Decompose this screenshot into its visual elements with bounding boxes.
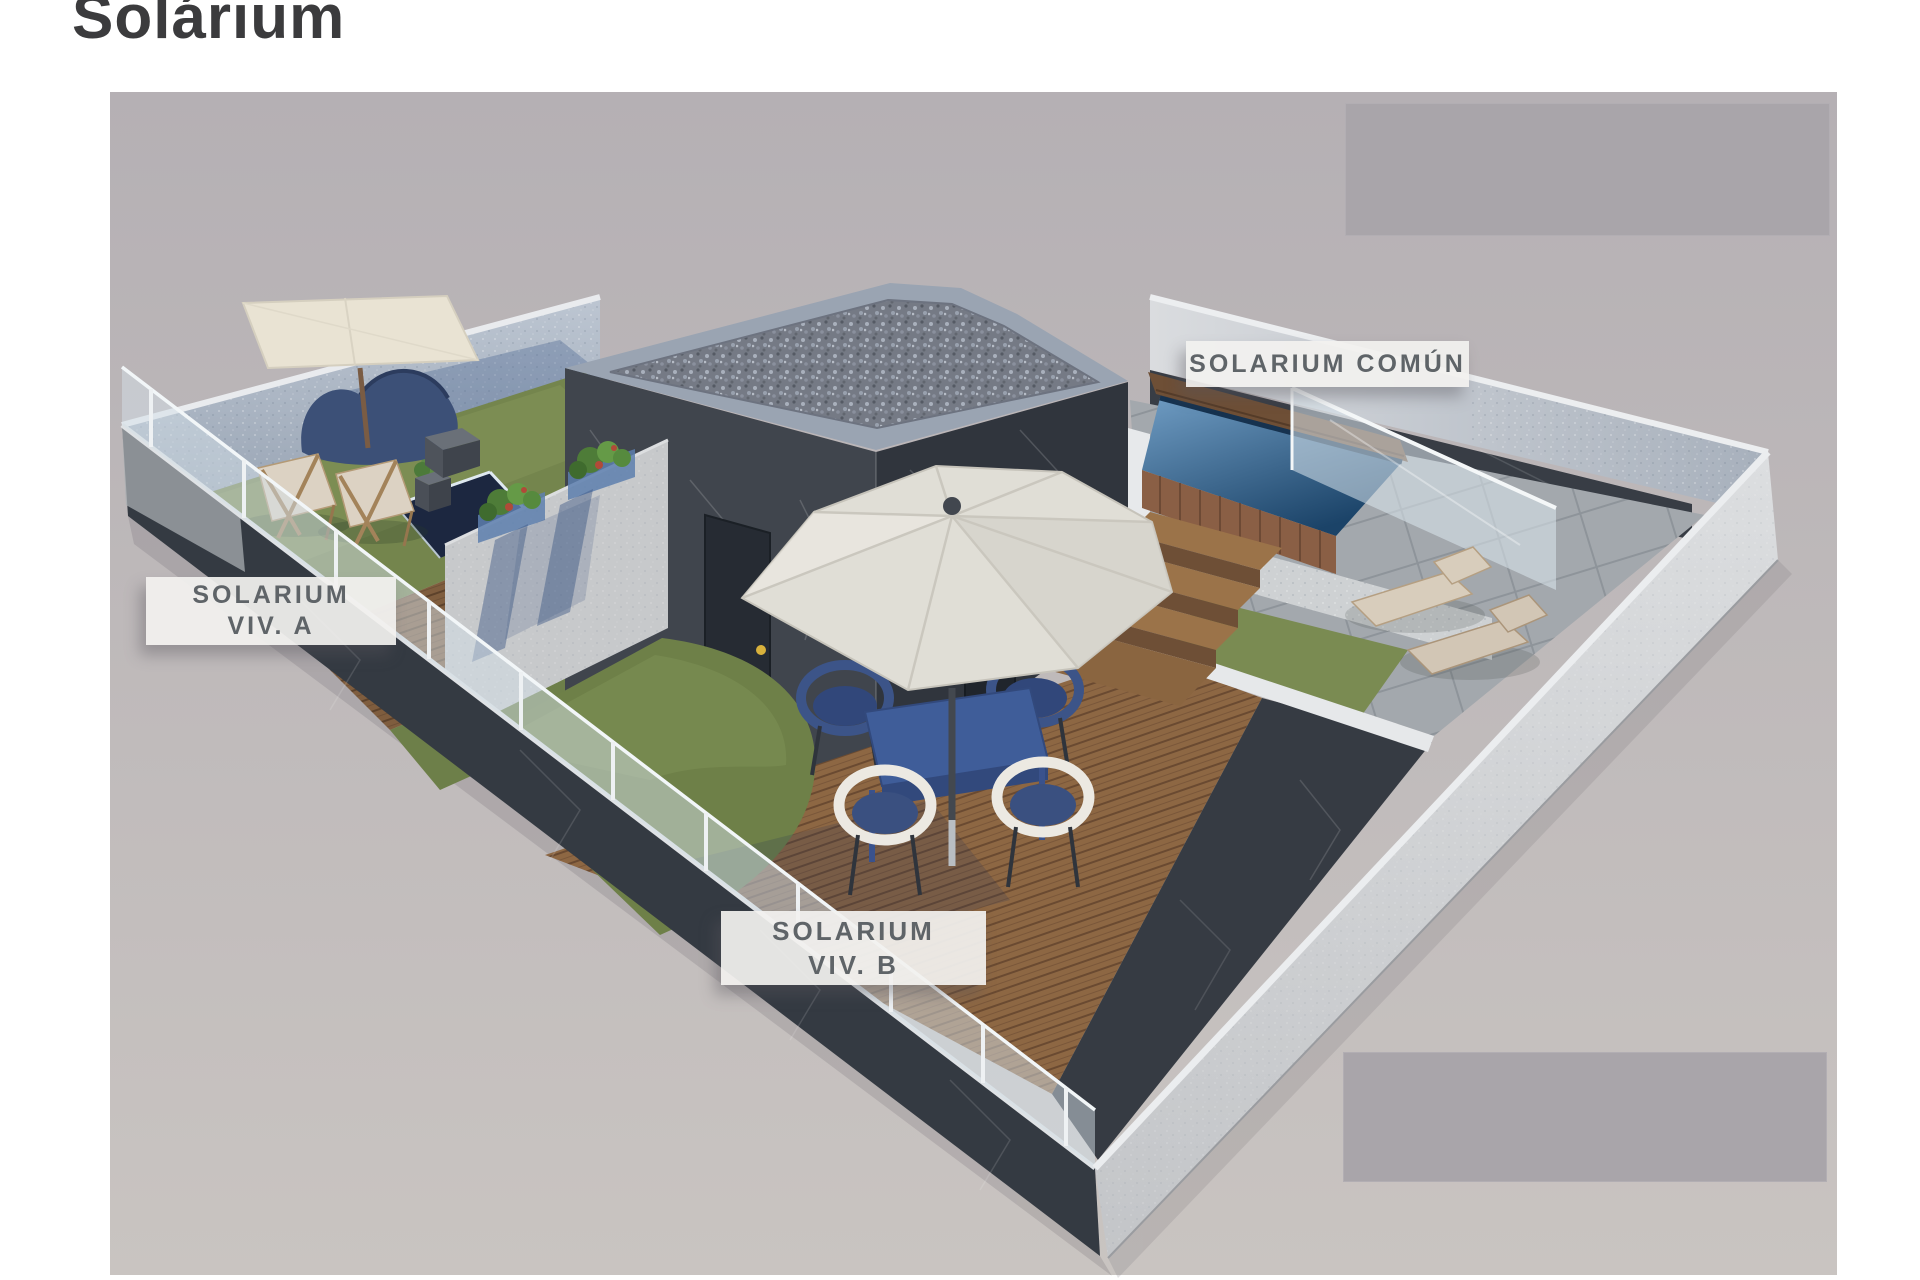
- door-handle: [756, 645, 766, 655]
- label-line: SOLARIUM COMÚN: [1186, 341, 1469, 387]
- solarium-plan-page: Solárium: [0, 0, 1920, 1280]
- label-solarium-viv-b: SOLARIUM VIV. B: [721, 911, 986, 985]
- label-solarium-viv-a: SOLARIUM VIV. A: [146, 577, 396, 645]
- label-line: VIV. B: [721, 948, 986, 982]
- placeholder-box-bottom-right: [1343, 1052, 1827, 1182]
- label-line: SOLARIUM: [721, 914, 986, 948]
- label-line: SOLARIUM: [146, 580, 396, 611]
- label-solarium-comun: SOLARIUM COMÚN: [1186, 341, 1469, 387]
- placeholder-box-top-right: [1345, 103, 1830, 236]
- label-line: VIV. A: [146, 611, 396, 642]
- umbrella-finial: [943, 497, 961, 515]
